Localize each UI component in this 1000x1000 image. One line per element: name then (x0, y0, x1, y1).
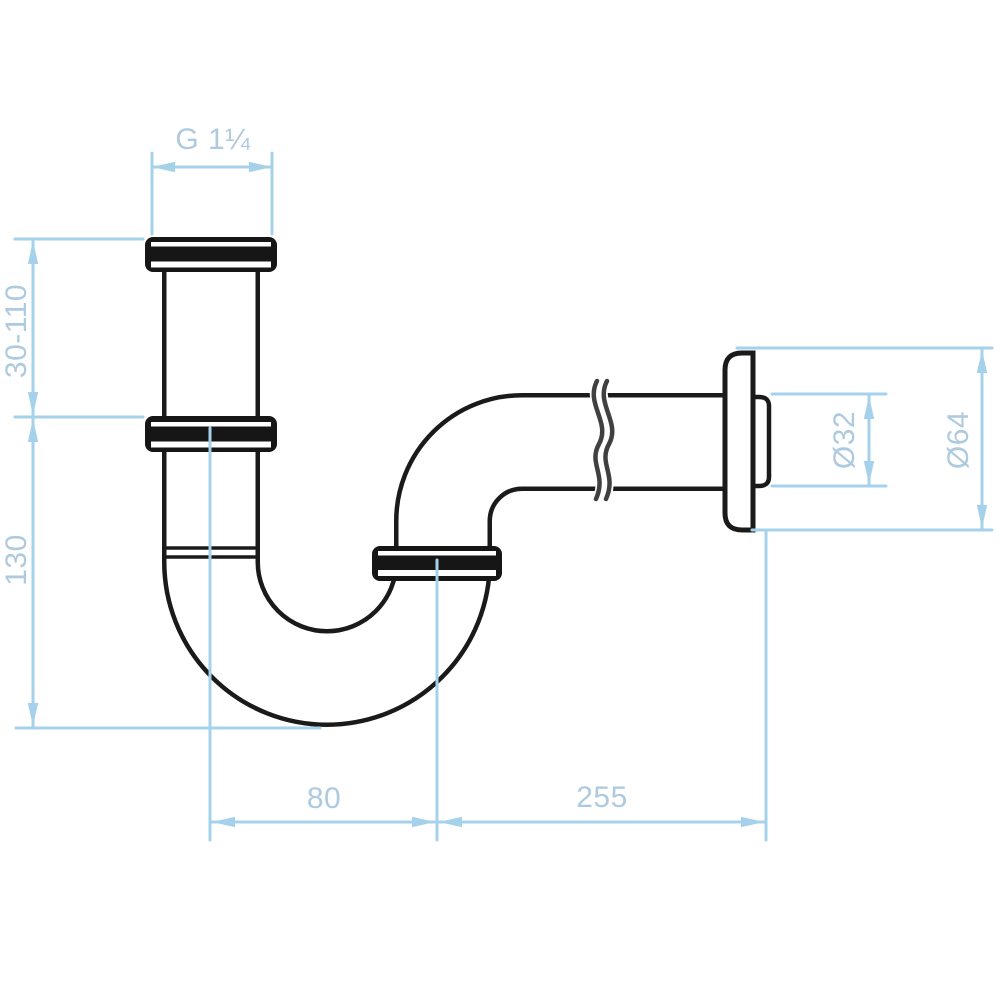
label-pipe-diameter: Ø32 (828, 411, 861, 469)
arrowhead (977, 505, 987, 528)
p-trap-drawing-canvas: G 1¼ 30-110 130 Ø32 Ø64 80 255 (0, 0, 1000, 1000)
arrowhead (212, 817, 235, 827)
technical-drawing-page: G 1¼ 30-110 130 Ø32 Ø64 80 255 (0, 0, 1000, 1000)
label-adjust-range: 30-110 (0, 284, 33, 378)
label-trap-offset: 80 (307, 782, 341, 815)
arrowhead (28, 392, 38, 415)
pipe-line-art (145, 237, 769, 678)
label-rosette-diameter: Ø64 (942, 411, 975, 469)
arrowhead (412, 817, 435, 827)
pipe-inner-fill (211, 243, 729, 678)
arrowhead (439, 817, 462, 827)
label-thread-size: G 1¼ (175, 123, 251, 156)
arrowhead (28, 419, 38, 442)
label-outlet-length: 255 (576, 781, 628, 814)
arrowhead (977, 350, 987, 373)
wall-rosette-flange (725, 353, 753, 530)
union-nut-stripe-top (151, 422, 271, 427)
arrowhead (28, 241, 38, 264)
arrowhead (249, 162, 272, 172)
arrowhead (28, 703, 38, 726)
outlet-nut-stripe-top (378, 551, 496, 556)
arrowhead (741, 817, 764, 827)
inlet-nut-stripe-top (151, 242, 271, 247)
arrowhead (864, 396, 874, 419)
inlet-nut-stripe-bottom (151, 262, 271, 268)
arrowhead (152, 162, 175, 172)
label-inlet-depth: 130 (0, 534, 33, 586)
inlet-nut (145, 237, 277, 272)
arrowhead (864, 461, 874, 484)
